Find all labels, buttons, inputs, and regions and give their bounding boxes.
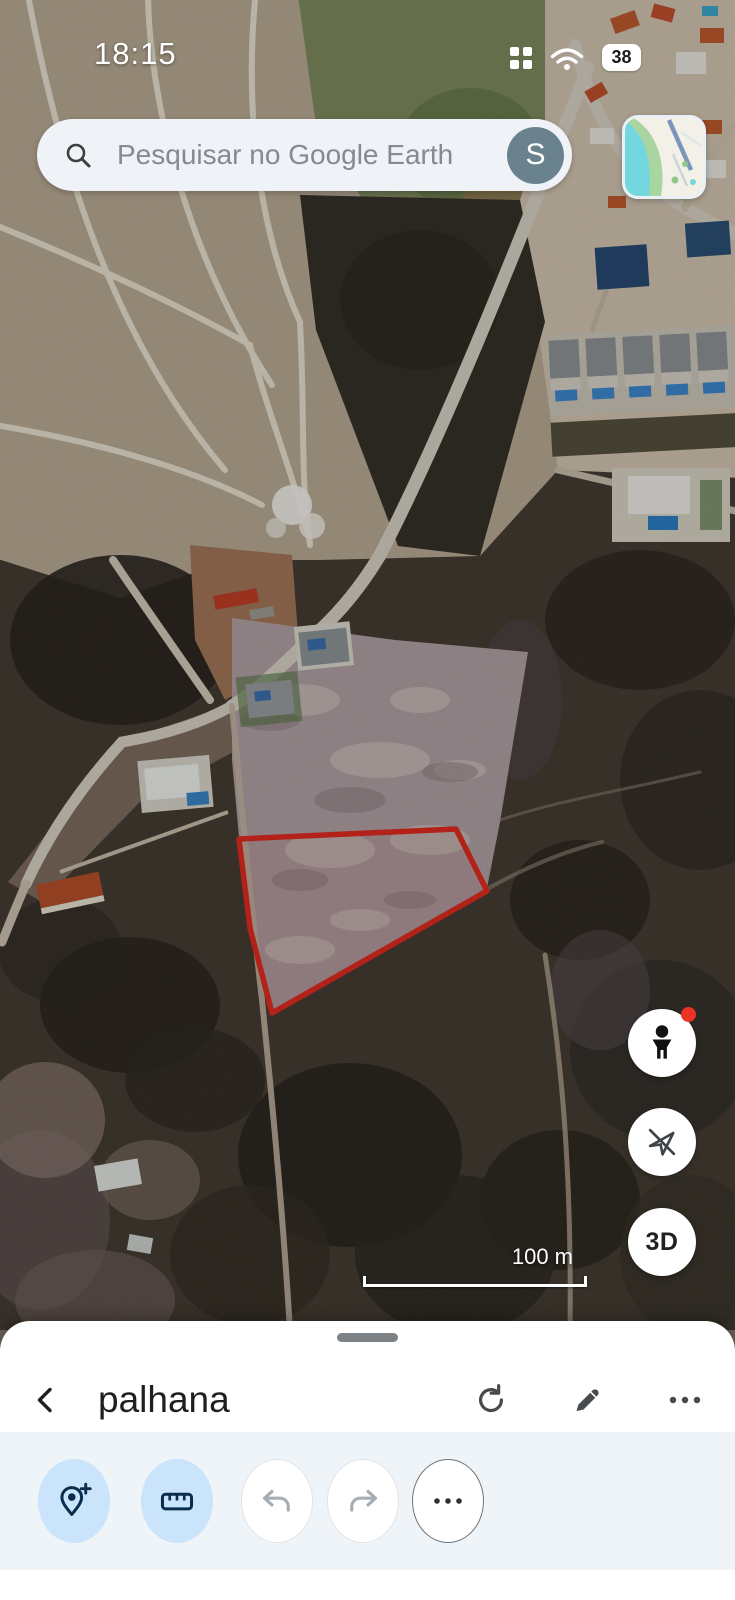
add-placemark-button[interactable] (38, 1459, 110, 1543)
back-button[interactable] (24, 1378, 68, 1422)
edit-button[interactable] (563, 1376, 611, 1424)
3d-toggle-button[interactable]: 3D (628, 1208, 696, 1276)
undo-button[interactable] (241, 1459, 313, 1543)
more-horizontal-icon (668, 1394, 702, 1406)
avatar-letter: S (525, 138, 545, 172)
my-location-disabled-button[interactable] (628, 1108, 696, 1176)
pegman-notification-dot (681, 1007, 696, 1022)
satellite-map[interactable] (0, 0, 735, 1330)
editing-toolbar (0, 1432, 735, 1570)
more-tools-button[interactable] (412, 1459, 484, 1543)
pencil-icon (571, 1384, 603, 1416)
drag-handle[interactable] (337, 1333, 398, 1342)
refresh-button[interactable] (467, 1376, 515, 1424)
redo-icon (345, 1484, 381, 1518)
map-style-thumbnail[interactable] (622, 115, 706, 199)
location-off-icon (644, 1124, 680, 1160)
ruler-icon (158, 1482, 196, 1520)
project-title: palhana (98, 1379, 467, 1421)
project-bottom-sheet: palhana (0, 1321, 735, 1600)
search-input[interactable] (115, 138, 507, 172)
redo-button[interactable] (327, 1459, 399, 1543)
back-chevron-icon (30, 1384, 62, 1416)
sheet-header: palhana (0, 1371, 735, 1429)
search-icon (63, 140, 93, 170)
3d-label: 3D (646, 1228, 679, 1257)
undo-icon (259, 1484, 295, 1518)
pegman-icon (644, 1024, 680, 1062)
search-bar[interactable]: S (37, 119, 572, 191)
google-earth-app: 18:15 38 (0, 0, 735, 1600)
more-options-button[interactable] (661, 1376, 709, 1424)
account-avatar[interactable]: S (507, 127, 564, 184)
measure-button[interactable] (141, 1459, 213, 1543)
add-placemark-icon (55, 1482, 93, 1520)
more-tools-icon (433, 1496, 463, 1506)
refresh-icon (474, 1383, 508, 1417)
